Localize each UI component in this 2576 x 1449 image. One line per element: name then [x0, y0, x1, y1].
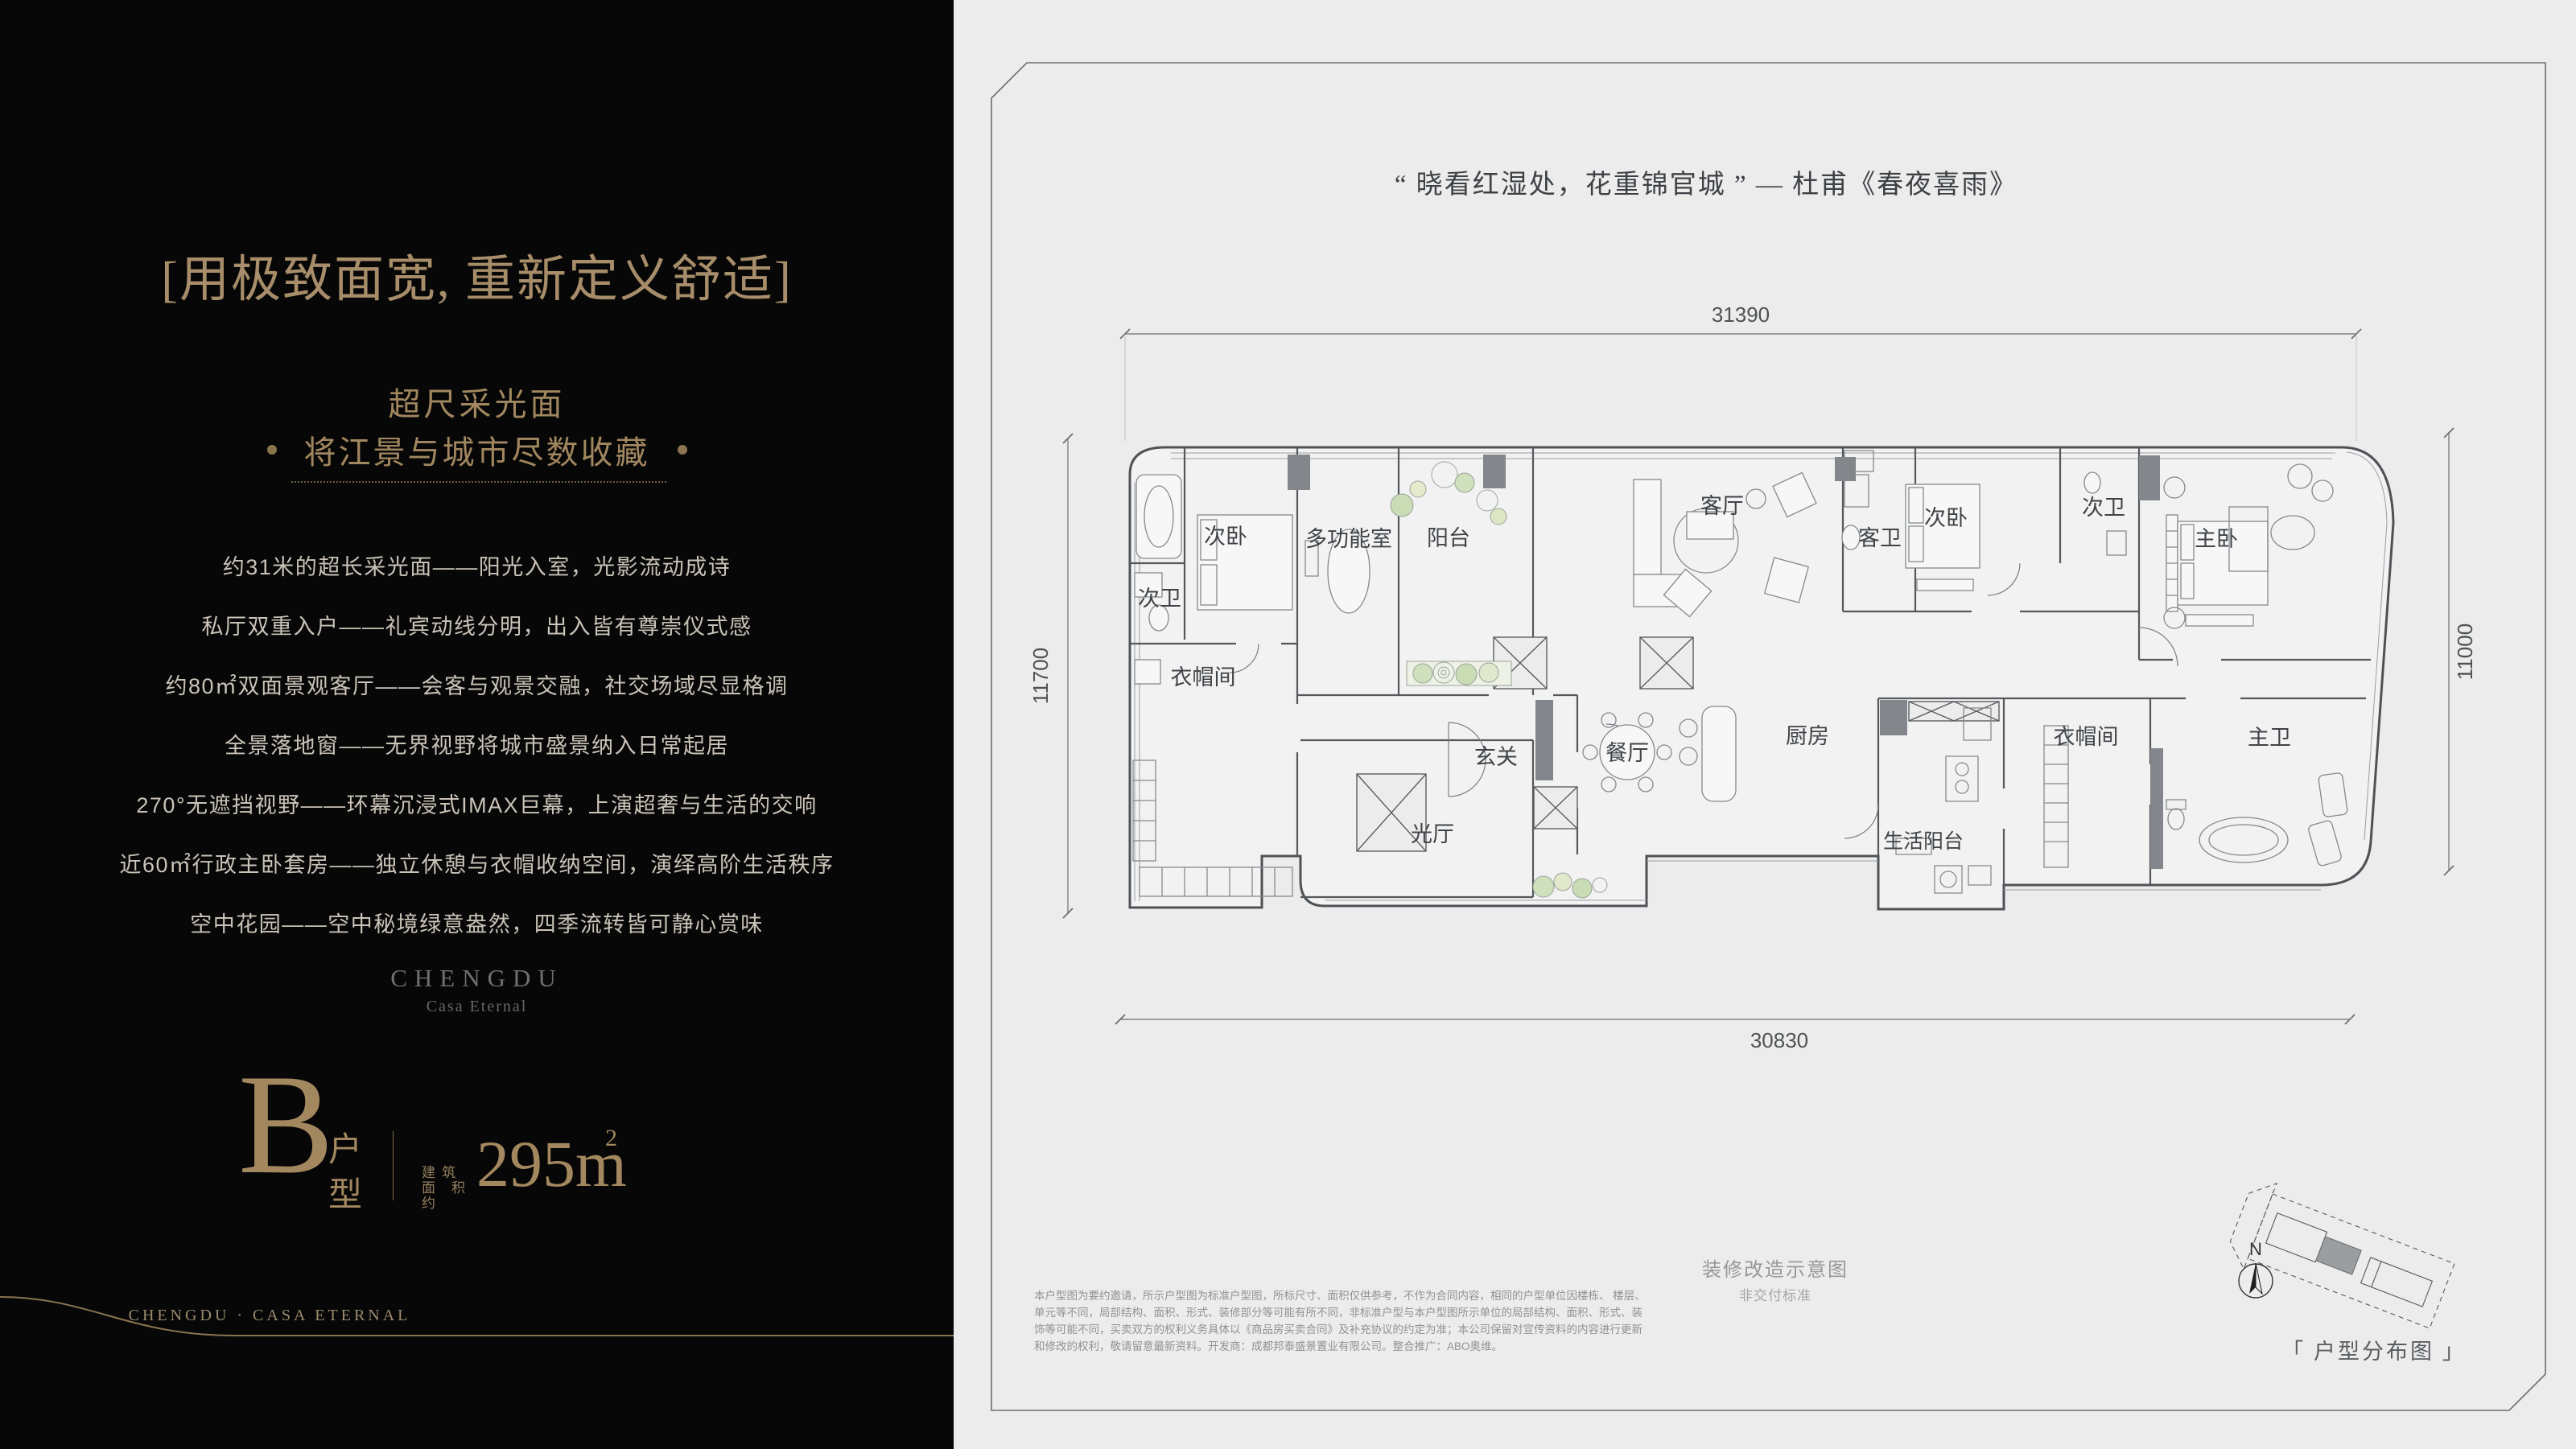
feature-item: 近60㎡行政主卧套房——独立休憩与衣帽收纳空间，演绎高阶生活秩序: [0, 847, 954, 879]
room-label: 次卫: [2082, 496, 2125, 520]
room-label: 客厅: [1700, 494, 1744, 518]
room-label: 多功能室: [1305, 527, 1392, 551]
dim-bottom: 30830: [1750, 1028, 1808, 1052]
feature-item: 约31米的超长采光面——阳光入室，光影流动成诗: [0, 550, 954, 581]
north-arrow-icon: N: [2239, 1239, 2273, 1298]
bullet-dot-icon: [678, 445, 687, 455]
dim-right: 11000: [2453, 624, 2477, 680]
room-label: 衣帽间: [1171, 665, 1236, 690]
room-label: 阳台: [1427, 526, 1470, 550]
feature-item: 270°无遮挡视野——环幕沉浸式IMAX巨幕，上演超奢与生活的交响: [0, 788, 954, 819]
subtitle: 超尺采光面: [0, 378, 954, 425]
room-label: 厨房: [1786, 724, 1829, 748]
unit-type-char1: 户: [328, 1128, 362, 1173]
dotted-divider: [291, 481, 666, 483]
feature-item: 全景落地窗——无界视野将城市盛景纳入日常起居: [0, 728, 954, 759]
subtitle-2: 将江景与城市尽数收藏: [0, 426, 954, 473]
poster-canvas: [用极致面宽, 重新定义舒适] 超尺采光面 将江景与城市尽数收藏 约31米的超长…: [0, 0, 2576, 1449]
subtitle-2-text: 将江景与城市尽数收藏: [304, 426, 650, 473]
bullet-dot-icon: [267, 445, 277, 455]
room-label: 次卫: [1138, 587, 1181, 611]
brand-logo: CHENGDU: [0, 964, 954, 993]
vertical-divider: [393, 1131, 394, 1200]
unit-area-sup: 2: [605, 1125, 617, 1152]
dim-left: 11700: [1028, 648, 1053, 704]
area-prefix: 建 筑 面积约: [422, 1165, 467, 1211]
disclaimer-line: 和修改的权利，敬请留意最新资料。开发商：成都邦泰盛景置业有限公司。整合推广：AB…: [1034, 1338, 1855, 1355]
floorplan-svg: 31390 30830 11700 11000: [954, 0, 2576, 1449]
disclaimer-text: 本户型图为要约邀请，所示户型图为标准户型图，所标尺寸、面积仅供参考，不作为合同内…: [1034, 1287, 1855, 1355]
unit-type-char2: 型: [328, 1173, 362, 1218]
disclaimer-line: 单元等不同，局部结构、面积、形式、装修部分等可能有所不同，非标准户型与本户型图所…: [1034, 1304, 1855, 1321]
feature-item: 私厅双重入户——礼宾动线分明，出入皆有尊崇仪式感: [0, 609, 954, 640]
left-panel: [用极致面宽, 重新定义舒适] 超尺采光面 将江景与城市尽数收藏 约31米的超长…: [0, 0, 954, 1449]
room-label: 玄关: [1474, 745, 1518, 769]
room-label: 衣帽间: [2054, 725, 2119, 749]
footer-brand-text: CHENGDU · CASA ETERNAL: [121, 1307, 418, 1325]
room-label: 餐厅: [1605, 741, 1649, 765]
room-label: 次卧: [1924, 506, 1968, 530]
unit-info: B 户 型 建 筑 面积约 295m 2: [0, 1062, 954, 1223]
dim-top: 31390: [1712, 303, 1770, 327]
renovation-note-title: 装修改造示意图: [1650, 1253, 1901, 1282]
area-prefix-line1: 建 筑: [422, 1165, 467, 1180]
bathtub: [1136, 475, 1181, 558]
unit-letter: B: [238, 1052, 334, 1196]
kitchen-island: [1702, 706, 1736, 801]
disclaimer-line: 本户型图为要约邀请，所示户型图为标准户型图，所标尺寸、面积仅供参考，不作为合同内…: [1034, 1287, 1855, 1304]
room-label: 客卫: [1858, 526, 1902, 550]
brand-logo-sub: Casa Eternal: [0, 998, 954, 1016]
room-label: 生活阳台: [1883, 830, 1964, 853]
room-label: 光厅: [1411, 822, 1454, 846]
feature-item: 空中花园——空中秘境绿意盎然，四季流转皆可静心赏味: [0, 907, 954, 938]
keyplan-label: 「 户型分布图 」: [2245, 1334, 2503, 1365]
unit-type-label: 户 型: [328, 1128, 362, 1218]
unit-area: 295m: [476, 1131, 627, 1197]
outer-walls: [1130, 447, 2393, 909]
page-title: [用极致面宽, 重新定义舒适]: [0, 238, 954, 311]
room-label: 主卫: [2248, 726, 2291, 750]
area-prefix-line2: 面积约: [422, 1180, 467, 1211]
feature-item: 约80㎡双面景观客厅——会客与观景交融，社交场域尽显格调: [0, 669, 954, 700]
disclaimer-line: 饰等可能不同，买卖双方的权利义务具体以《商品房买卖合同》及补充协议的约定为准；本…: [1034, 1321, 1855, 1338]
room-label: 次卧: [1204, 525, 1247, 549]
room-label: 主卧: [2195, 527, 2238, 551]
